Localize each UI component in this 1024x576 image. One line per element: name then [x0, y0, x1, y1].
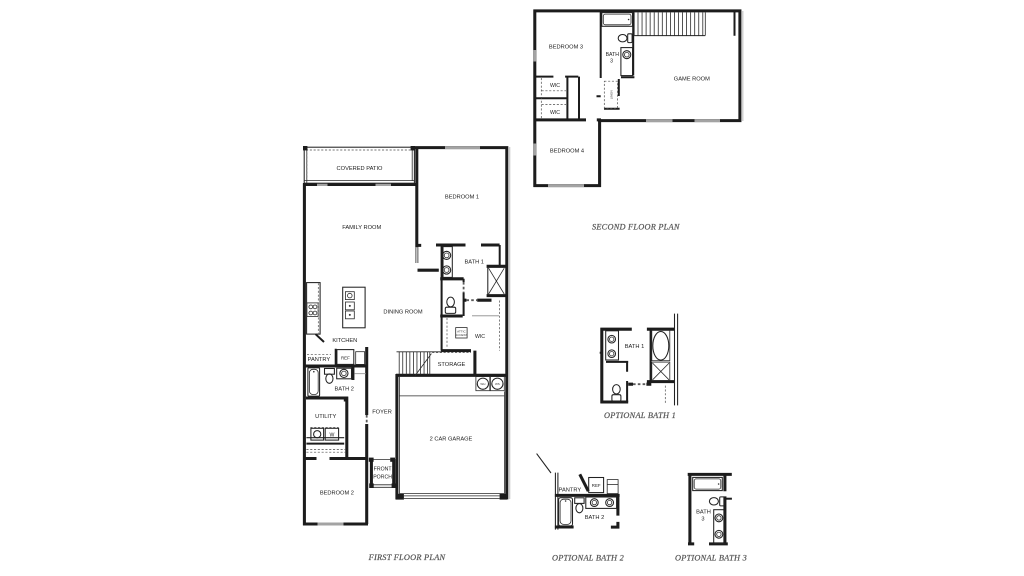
svg-text:REF: REF [341, 355, 350, 360]
svg-text:BATH: BATH [696, 510, 711, 516]
svg-text:FAMILY ROOM: FAMILY ROOM [342, 225, 381, 231]
svg-text:DINING ROOM: DINING ROOM [383, 309, 422, 315]
svg-text:KITCHEN: KITCHEN [332, 338, 357, 344]
svg-text:FRONT: FRONT [374, 467, 393, 473]
svg-text:GAME ROOM: GAME ROOM [674, 76, 710, 82]
svg-text:PANTRY: PANTRY [559, 488, 582, 494]
svg-text:WIC: WIC [550, 110, 560, 116]
svg-text:BEDROOM 2: BEDROOM 2 [320, 490, 354, 496]
svg-text:OPTIONAL BATH 1: OPTIONAL BATH 1 [604, 411, 676, 420]
svg-text:FIRST FLOOR PLAN: FIRST FLOOR PLAN [368, 553, 446, 562]
svg-text:UTILITY: UTILITY [315, 414, 336, 420]
svg-text:BATH: BATH [606, 52, 620, 58]
svg-text:OPTIONAL BATH 2: OPTIONAL BATH 2 [552, 554, 624, 563]
svg-text:WIC: WIC [475, 334, 485, 340]
svg-text:SECOND FLOOR PLAN: SECOND FLOOR PLAN [592, 223, 680, 232]
svg-text:COVERED PATIO: COVERED PATIO [337, 166, 384, 172]
svg-text:OPTIONAL BATH 3: OPTIONAL BATH 3 [675, 553, 747, 562]
svg-text:REF: REF [592, 483, 601, 488]
svg-text:WS: WS [495, 382, 500, 386]
svg-text:BEDROOM 1: BEDROOM 1 [445, 195, 479, 201]
svg-text:3: 3 [701, 517, 704, 523]
svg-text:BATH 2: BATH 2 [334, 387, 354, 393]
svg-text:BEDROOM 3: BEDROOM 3 [549, 44, 583, 50]
svg-text:BEDROOM 4: BEDROOM 4 [550, 148, 584, 154]
svg-text:3: 3 [610, 58, 613, 64]
svg-text:STORAGE: STORAGE [438, 362, 466, 368]
svg-text:WH: WH [480, 382, 485, 386]
svg-text:BATH 1: BATH 1 [625, 344, 645, 350]
svg-text:WIC: WIC [550, 83, 560, 89]
svg-text:FOYER: FOYER [372, 409, 392, 415]
svg-text:PANTRY: PANTRY [308, 357, 331, 363]
svg-text:LINEN: LINEN [610, 90, 614, 99]
svg-text:BATH 2: BATH 2 [585, 515, 605, 521]
svg-text:BATH 1: BATH 1 [464, 259, 484, 265]
svg-text:ACCESS: ACCESS [455, 333, 467, 337]
svg-text:2 CAR GARAGE: 2 CAR GARAGE [430, 436, 473, 442]
svg-text:PORCH: PORCH [373, 475, 392, 481]
